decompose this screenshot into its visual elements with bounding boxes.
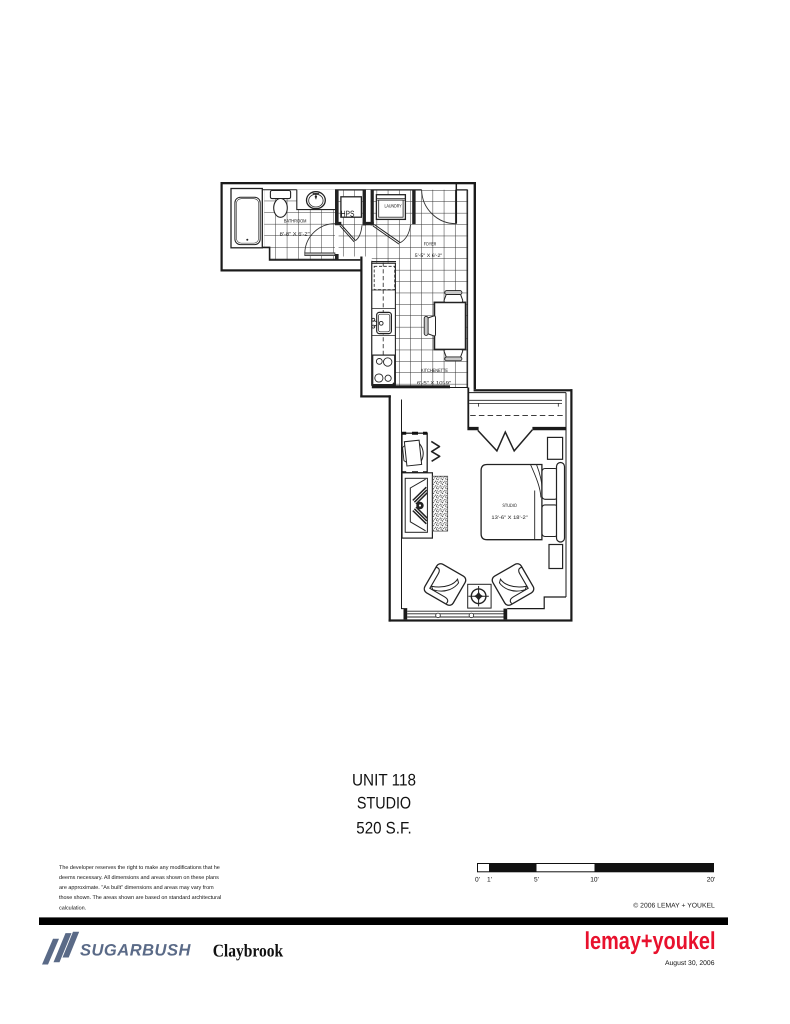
svg-text:SUGARBUSH: SUGARBUSH	[80, 941, 192, 959]
svg-text:August 30, 2006: August 30, 2006	[665, 960, 715, 967]
svg-text:8'-8" X 6'-2": 8'-8" X 6'-2"	[280, 232, 310, 238]
svg-text:UNIT 118: UNIT 118	[352, 770, 416, 789]
svg-text:The developer reserves the rig: The developer reserves the right to make…	[59, 865, 220, 871]
svg-text:10': 10'	[590, 877, 599, 884]
svg-text:20': 20'	[707, 877, 716, 884]
svg-text:KITCHENETTE: KITCHENETTE	[421, 368, 448, 373]
svg-text:STUDIO: STUDIO	[502, 503, 517, 509]
svg-text:5': 5'	[534, 877, 539, 884]
svg-text:0': 0'	[475, 877, 480, 884]
svg-text:deems necessary. All dimensio: deems necessary. All dimensions and area…	[59, 875, 219, 881]
svg-text:© 2006 LEMAY + YOUKEL: © 2006 LEMAY + YOUKEL	[633, 903, 715, 910]
svg-text:LAUNDRY: LAUNDRY	[385, 204, 403, 209]
svg-text:BATHROOM: BATHROOM	[284, 219, 307, 224]
svg-text:520 S.F.: 520 S.F.	[356, 818, 411, 837]
svg-text:13'-6" X 18'-2": 13'-6" X 18'-2"	[491, 515, 528, 521]
svg-text:STUDIO: STUDIO	[357, 793, 411, 812]
svg-text:HPS: HPS	[341, 209, 355, 219]
svg-text:1': 1'	[487, 877, 492, 884]
svg-text:6'-5" X 10'-9": 6'-5" X 10'-9"	[417, 380, 451, 386]
svg-text:5'-5" X 6'-2": 5'-5" X 6'-2"	[415, 253, 443, 259]
svg-text:FOYER: FOYER	[424, 241, 437, 247]
svg-text:those shown. The areas shown: those shown. The areas shown are based o…	[59, 895, 221, 901]
svg-text:calculation.: calculation.	[59, 905, 87, 911]
svg-text:are approximate. "As built" d: are approximate. "As built" dimensions a…	[59, 885, 214, 891]
svg-text:lemay+youkel: lemay+youkel	[585, 928, 716, 955]
svg-text:Claybrook: Claybrook	[213, 940, 284, 960]
